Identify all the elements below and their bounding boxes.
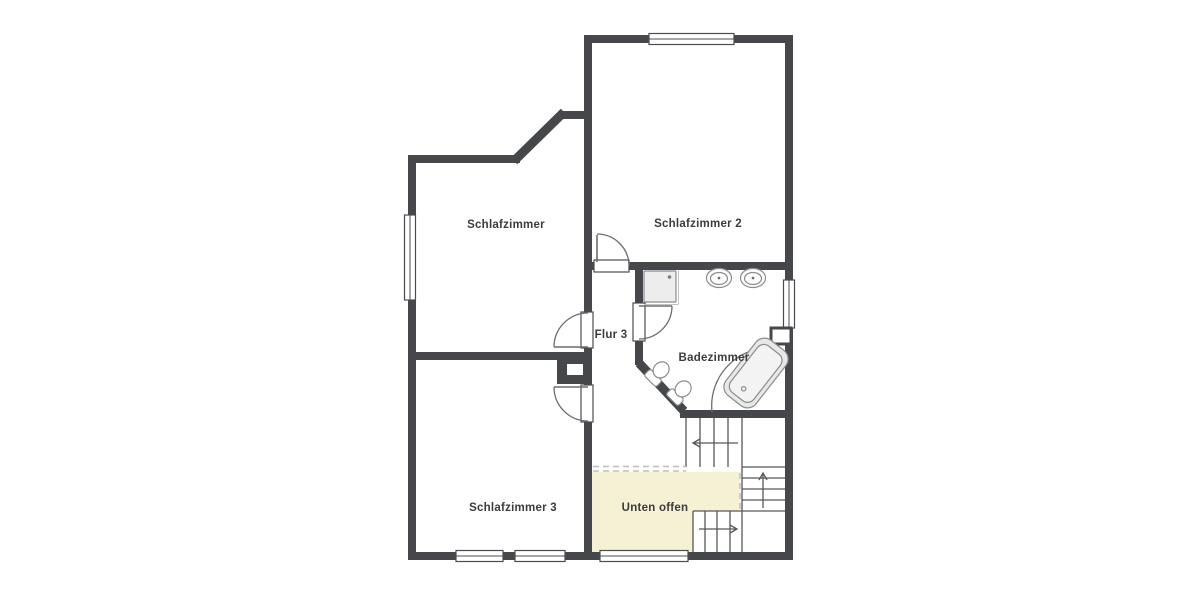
window bbox=[600, 551, 688, 562]
sink-2 bbox=[741, 269, 766, 288]
stair-arrow-up bbox=[759, 473, 767, 508]
bathtub bbox=[712, 334, 793, 413]
door-schlafzimmer2 bbox=[594, 234, 629, 272]
toilet-1 bbox=[644, 358, 673, 387]
window bbox=[456, 551, 503, 562]
room-label-flur3: Flur 3 bbox=[595, 329, 628, 341]
room-label-badezimmer: Badezimmer bbox=[679, 352, 750, 364]
room-label-unten-offen: Unten offen bbox=[622, 502, 689, 514]
door-schlafzimmer bbox=[554, 312, 593, 348]
floor-plan: Schlafzimmer Schlafzimmer 2 Flur 3 Badez… bbox=[0, 0, 1200, 600]
floor-plan-canvas: Schlafzimmer Schlafzimmer 2 Flur 3 Badez… bbox=[0, 0, 1200, 600]
diagonal-wall-schlafzimmer bbox=[514, 112, 564, 161]
window bbox=[405, 215, 416, 300]
window bbox=[515, 551, 565, 562]
door-badezimmer bbox=[633, 303, 672, 341]
window bbox=[784, 280, 795, 328]
chimney-flue bbox=[567, 364, 583, 375]
door-schlafzimmer3 bbox=[554, 385, 593, 422]
sink-1 bbox=[707, 269, 732, 288]
wall-niche bbox=[771, 328, 791, 344]
shower bbox=[644, 271, 679, 305]
window bbox=[649, 34, 734, 45]
room-label-schlafzimmer3: Schlafzimmer 3 bbox=[469, 502, 557, 514]
room-label-schlafzimmer2: Schlafzimmer 2 bbox=[654, 218, 742, 230]
room-label-schlafzimmer: Schlafzimmer bbox=[467, 219, 545, 231]
